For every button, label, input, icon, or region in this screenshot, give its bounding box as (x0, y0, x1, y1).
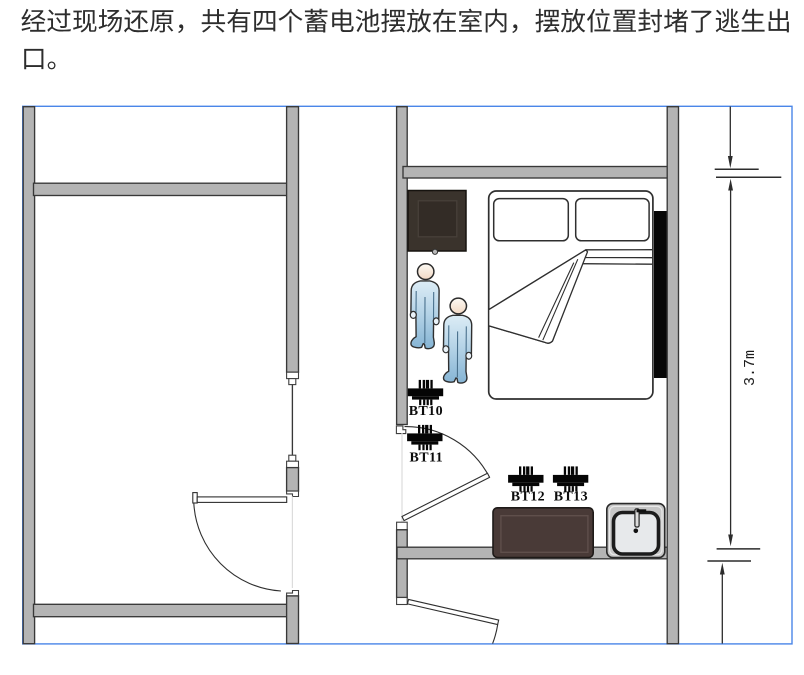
svg-text:BT10: BT10 (409, 404, 443, 419)
svg-text:BT12: BT12 (511, 489, 545, 504)
svg-text:BT13: BT13 (554, 489, 588, 504)
svg-text:BT11: BT11 (410, 451, 444, 466)
svg-text:3.7m: 3.7m (742, 350, 759, 386)
